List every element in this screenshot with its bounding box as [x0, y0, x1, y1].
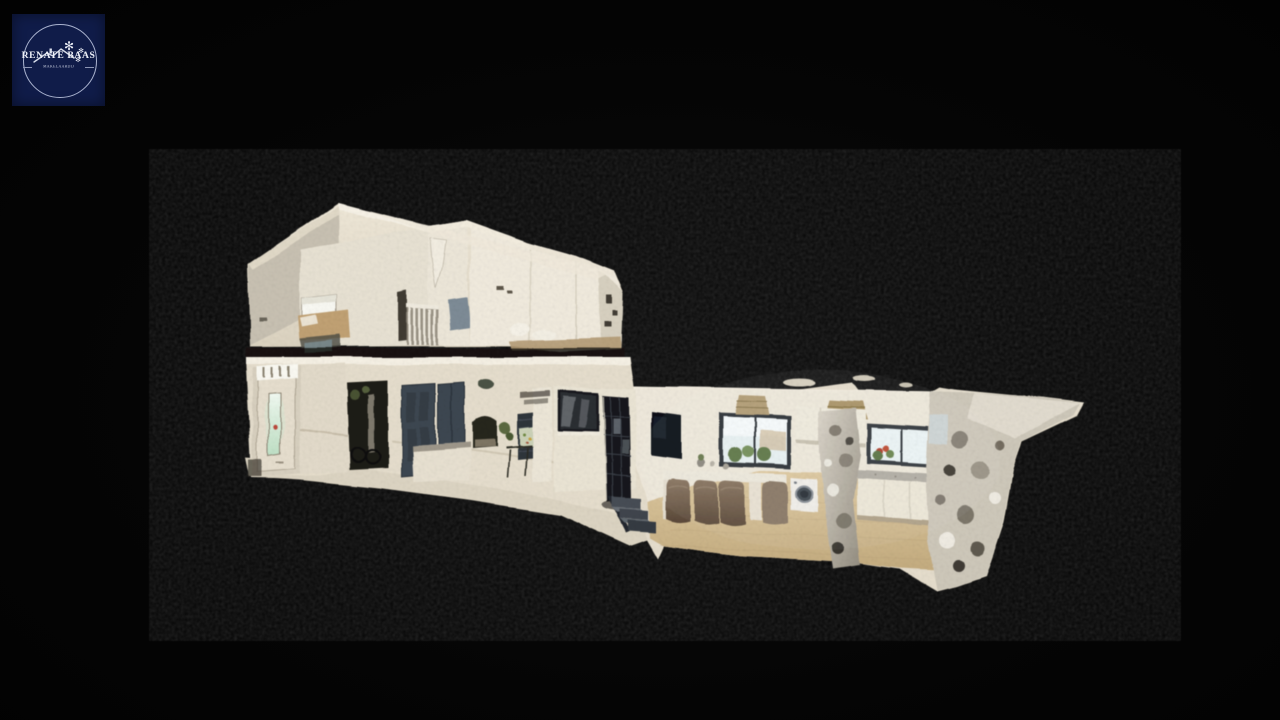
logo-tagline-text: MAKELAARDIJ — [43, 65, 74, 69]
tour-3d-canvas[interactable]: ✻ ✻ ✻ RENATE BAAS MAKELAARDIJ — [0, 0, 1280, 720]
dollhouse-model[interactable] — [0, 0, 1280, 720]
tagline-rule-left — [23, 67, 32, 68]
scan-noise-overlay — [235, 190, 1095, 600]
brand-logo: ✻ ✻ ✻ RENATE BAAS MAKELAARDIJ — [12, 14, 105, 106]
tagline-rule-right — [85, 67, 94, 68]
logo-tagline: MAKELAARDIJ — [12, 64, 105, 70]
logo-brand-text: RENATE BAAS — [12, 50, 105, 61]
